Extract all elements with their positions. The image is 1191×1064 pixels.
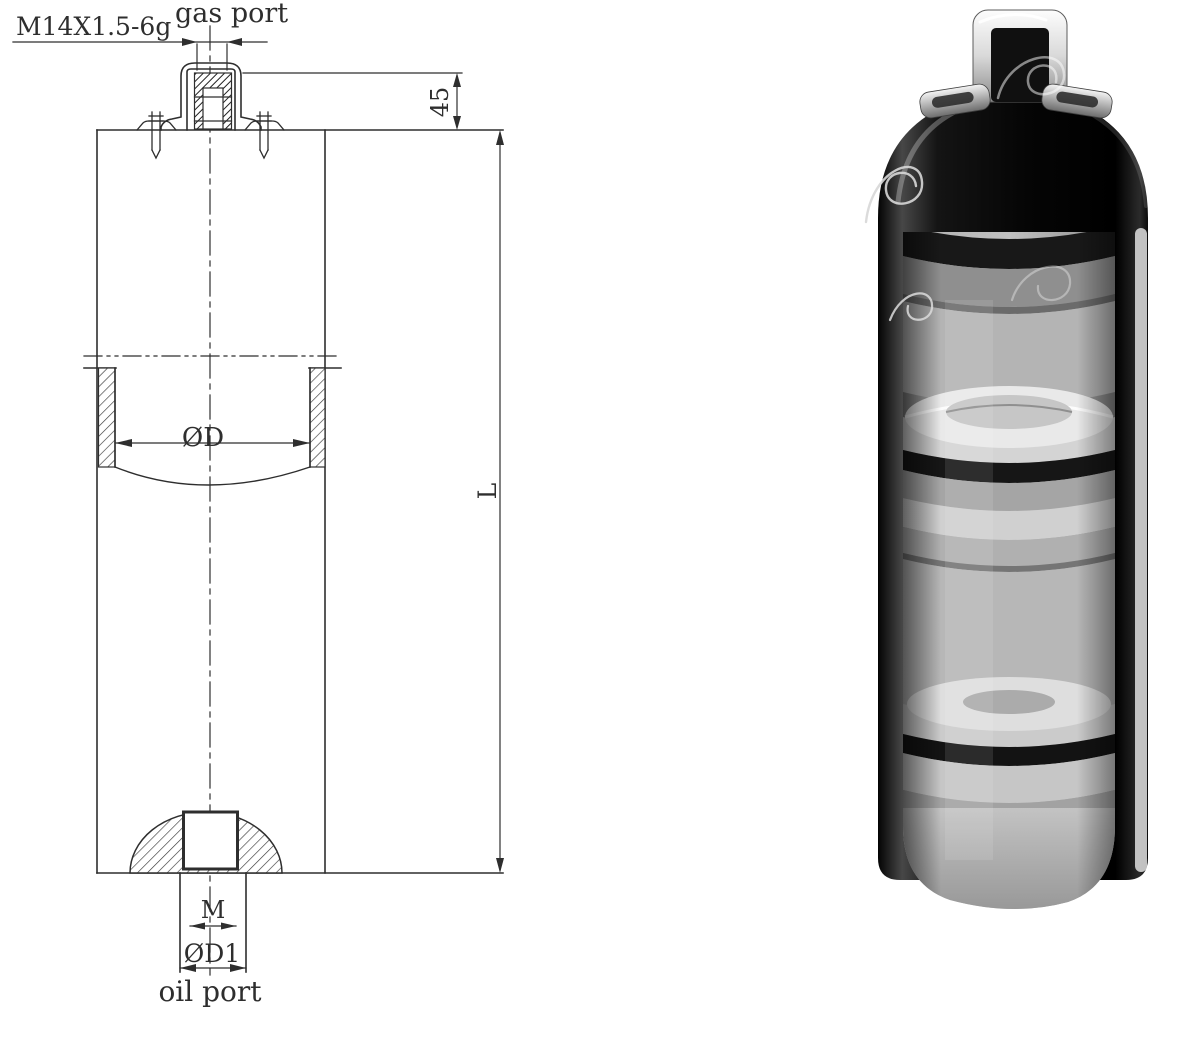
valve-height-label: 45: [426, 87, 454, 118]
oil-thread-label: M: [201, 896, 226, 924]
bore-section: [84, 356, 341, 485]
inner-bore: [903, 226, 1115, 926]
screw-right: [257, 112, 271, 158]
thread-spec-label: M14X1.5-6g: [16, 12, 171, 41]
screw-left: [149, 112, 163, 158]
cutaway-render: [845, 0, 1191, 1064]
drawing-lines: [13, 26, 504, 975]
cylinder-body-outline: [97, 130, 503, 873]
oil-port-label: oil port: [158, 975, 262, 1008]
front-view-drawing: M14X1.5-6g gas port 45 ØD L M ØD1 oil po…: [0, 0, 560, 1064]
oil-thread-bore: [184, 812, 238, 869]
oil-port-diameter-label: ØD1: [184, 939, 240, 968]
length-dimension: [496, 130, 504, 873]
total-length-label: L: [473, 483, 502, 500]
accumulator-diagram-page: M14X1.5-6g gas port 45 ØD L M ØD1 oil po…: [0, 0, 1191, 1064]
bore-diameter-label: ØD: [182, 423, 224, 453]
shell-cut-face: [1135, 228, 1147, 872]
gas-valve-detail: [161, 44, 261, 130]
gas-port-label: gas port: [175, 0, 288, 29]
